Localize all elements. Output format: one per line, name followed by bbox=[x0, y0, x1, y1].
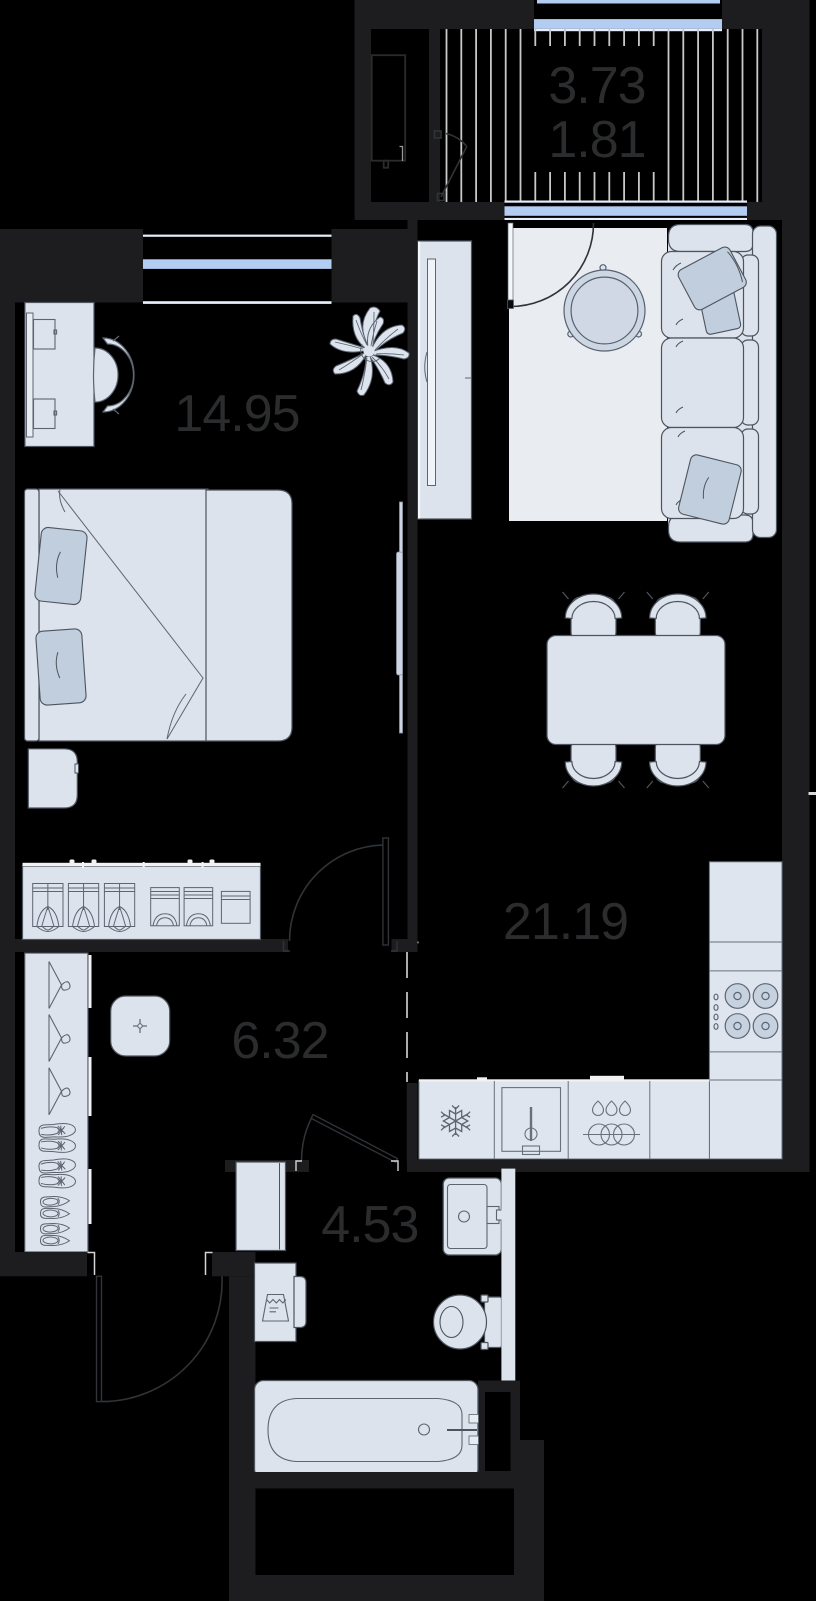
svg-text:1.81: 1.81 bbox=[548, 111, 645, 169]
svg-text:21.19: 21.19 bbox=[503, 893, 628, 951]
svg-text:14.95: 14.95 bbox=[174, 385, 299, 443]
svg-text:3.73: 3.73 bbox=[548, 57, 645, 115]
svg-text:6.32: 6.32 bbox=[231, 1012, 328, 1070]
svg-text:4.53: 4.53 bbox=[321, 1196, 418, 1254]
